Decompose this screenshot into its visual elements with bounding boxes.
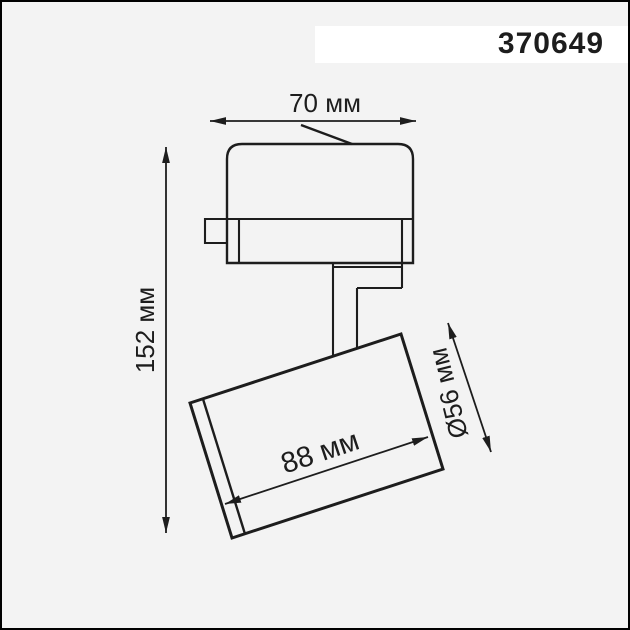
dim-152-label: 152 мм xyxy=(130,287,160,373)
technical-drawing-page: 370649 70 мм 152 мм 88 мм Ø56 мм xyxy=(0,0,630,630)
dim-70-label: 70 мм xyxy=(289,88,361,118)
dimension-diagram: 370649 70 мм 152 мм 88 мм Ø56 мм xyxy=(0,0,630,630)
part-number: 370649 xyxy=(498,27,604,60)
